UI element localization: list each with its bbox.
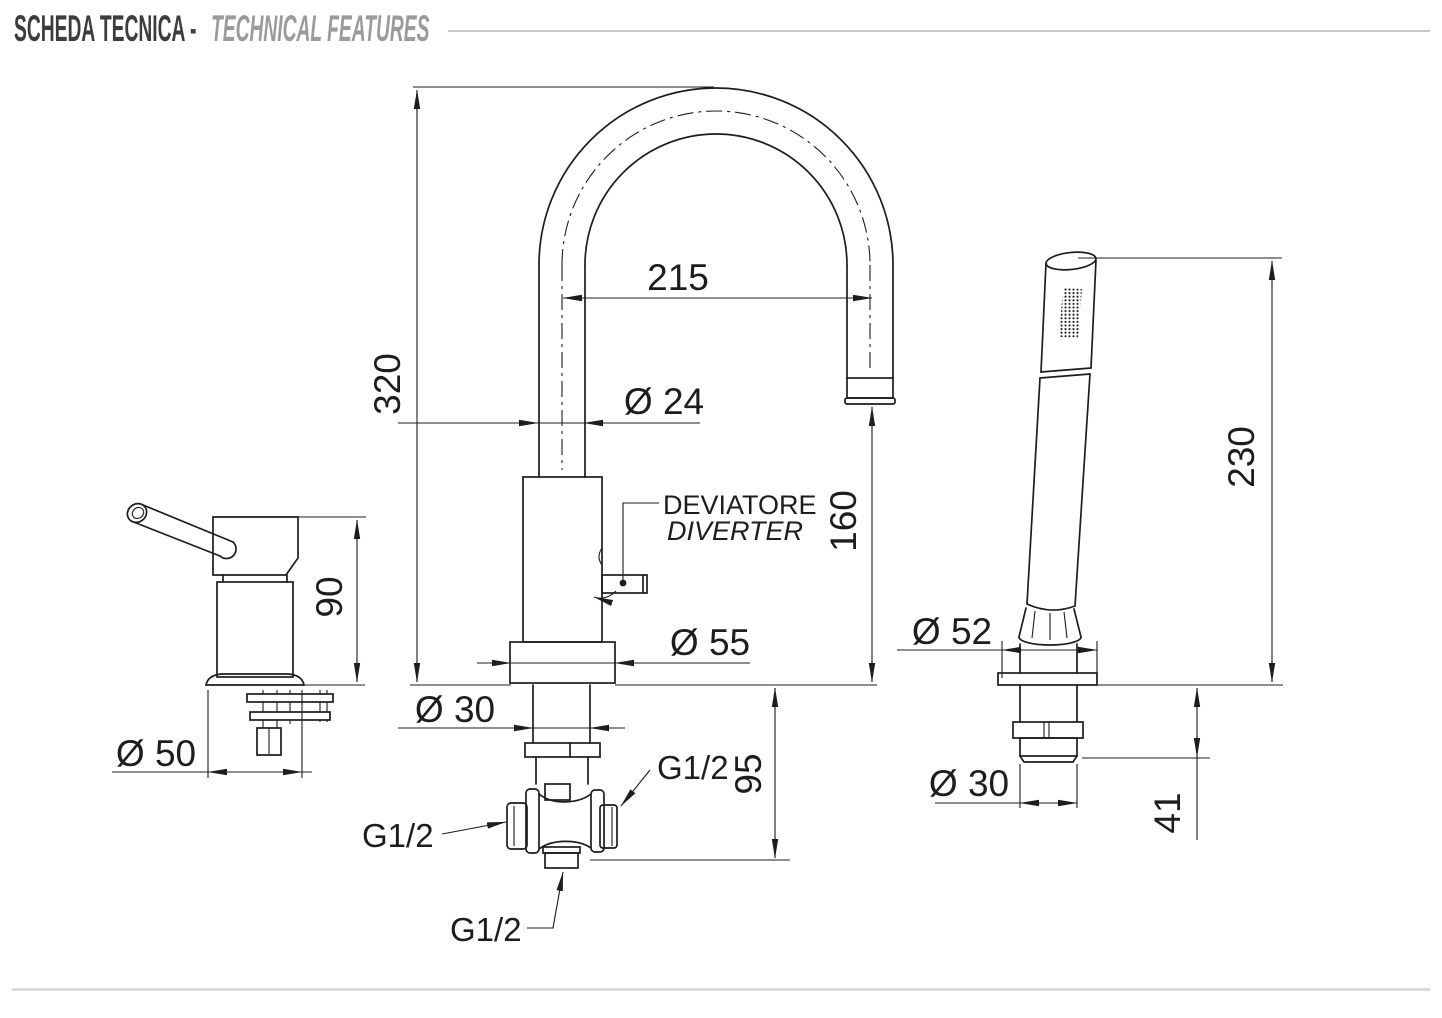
spout-drawing: 320 215 Ø 24 160 bbox=[362, 87, 895, 948]
footer-divider bbox=[12, 988, 1430, 991]
dim-handshower-shank-diameter: Ø 30 bbox=[929, 763, 1077, 808]
g12-label-left: G1/2 bbox=[362, 817, 434, 854]
valve-port-right bbox=[600, 805, 617, 848]
handshower-wand bbox=[1027, 250, 1097, 610]
mixer-flange bbox=[206, 674, 304, 685]
diverter-valve-body bbox=[507, 784, 617, 868]
spout-outlet bbox=[845, 378, 895, 404]
dim-label-24: Ø 24 bbox=[624, 381, 704, 422]
g12-label-bottom: G1/2 bbox=[450, 911, 522, 948]
dim-label-55: Ø 55 bbox=[670, 622, 750, 663]
mixer-body bbox=[217, 582, 293, 677]
connection-callout-bottom: G1/2 bbox=[450, 872, 563, 948]
mixer-fixing-hardware bbox=[247, 690, 333, 755]
dim-label-50: Ø 50 bbox=[116, 733, 196, 774]
handshower-shank bbox=[1013, 685, 1083, 762]
dim-label-30-right: Ø 30 bbox=[929, 763, 1009, 804]
dim-spout-reach: 215 bbox=[563, 257, 872, 298]
mixer-lever bbox=[124, 500, 236, 559]
dim-label-90: 90 bbox=[309, 576, 350, 617]
dim-handshower-shank-length: 41 bbox=[1082, 688, 1210, 840]
dim-mixer-base-diameter: Ø 50 bbox=[112, 690, 312, 778]
dim-label-30-mid: Ø 30 bbox=[415, 689, 495, 730]
dim-mixer-height: 90 bbox=[298, 517, 366, 682]
dim-label-160: 160 bbox=[823, 490, 864, 552]
connection-callout-left: G1/2 bbox=[362, 817, 506, 854]
handshower-holder bbox=[998, 608, 1097, 685]
handshower-drawing: 230 Ø 52 Ø 30 bbox=[897, 250, 1282, 840]
technical-sheet: SCHEDA TECNICA - TECHNICAL FEATURES bbox=[0, 0, 1442, 1018]
dim-label-52: Ø 52 bbox=[912, 611, 992, 652]
g12-label-right: G1/2 bbox=[657, 749, 729, 786]
mixer-control-drawing: 90 Ø 50 bbox=[112, 500, 366, 778]
spray-face bbox=[1059, 288, 1082, 338]
connection-callout-right: G1/2 bbox=[621, 749, 729, 806]
dim-label-320: 320 bbox=[367, 353, 408, 415]
dim-spout-tube-diameter: Ø 24 bbox=[398, 381, 704, 423]
mixer-cap bbox=[213, 517, 298, 575]
dim-label-215: 215 bbox=[647, 257, 709, 298]
valve-port-bottom bbox=[543, 847, 580, 853]
spout-body bbox=[523, 477, 602, 642]
diverter-label-en: DIVERTER bbox=[667, 516, 803, 546]
handshower-flange bbox=[998, 673, 1097, 685]
dim-handshower-height: 230 bbox=[1078, 258, 1282, 682]
technical-drawing: 90 Ø 50 bbox=[0, 0, 1442, 1018]
valve-port-left bbox=[507, 803, 527, 849]
spout-locknut bbox=[525, 743, 600, 757]
diverter-callout: DEVIATORE DIVERTER bbox=[620, 490, 817, 586]
dim-spout-outlet-height: 160 bbox=[823, 407, 872, 682]
dim-spout-shank-diameter: Ø 30 bbox=[398, 689, 625, 730]
dim-label-230: 230 bbox=[1221, 426, 1262, 488]
handshower-locknut bbox=[1013, 722, 1083, 738]
dim-label-95: 95 bbox=[728, 753, 769, 794]
dim-label-41: 41 bbox=[1147, 792, 1188, 833]
